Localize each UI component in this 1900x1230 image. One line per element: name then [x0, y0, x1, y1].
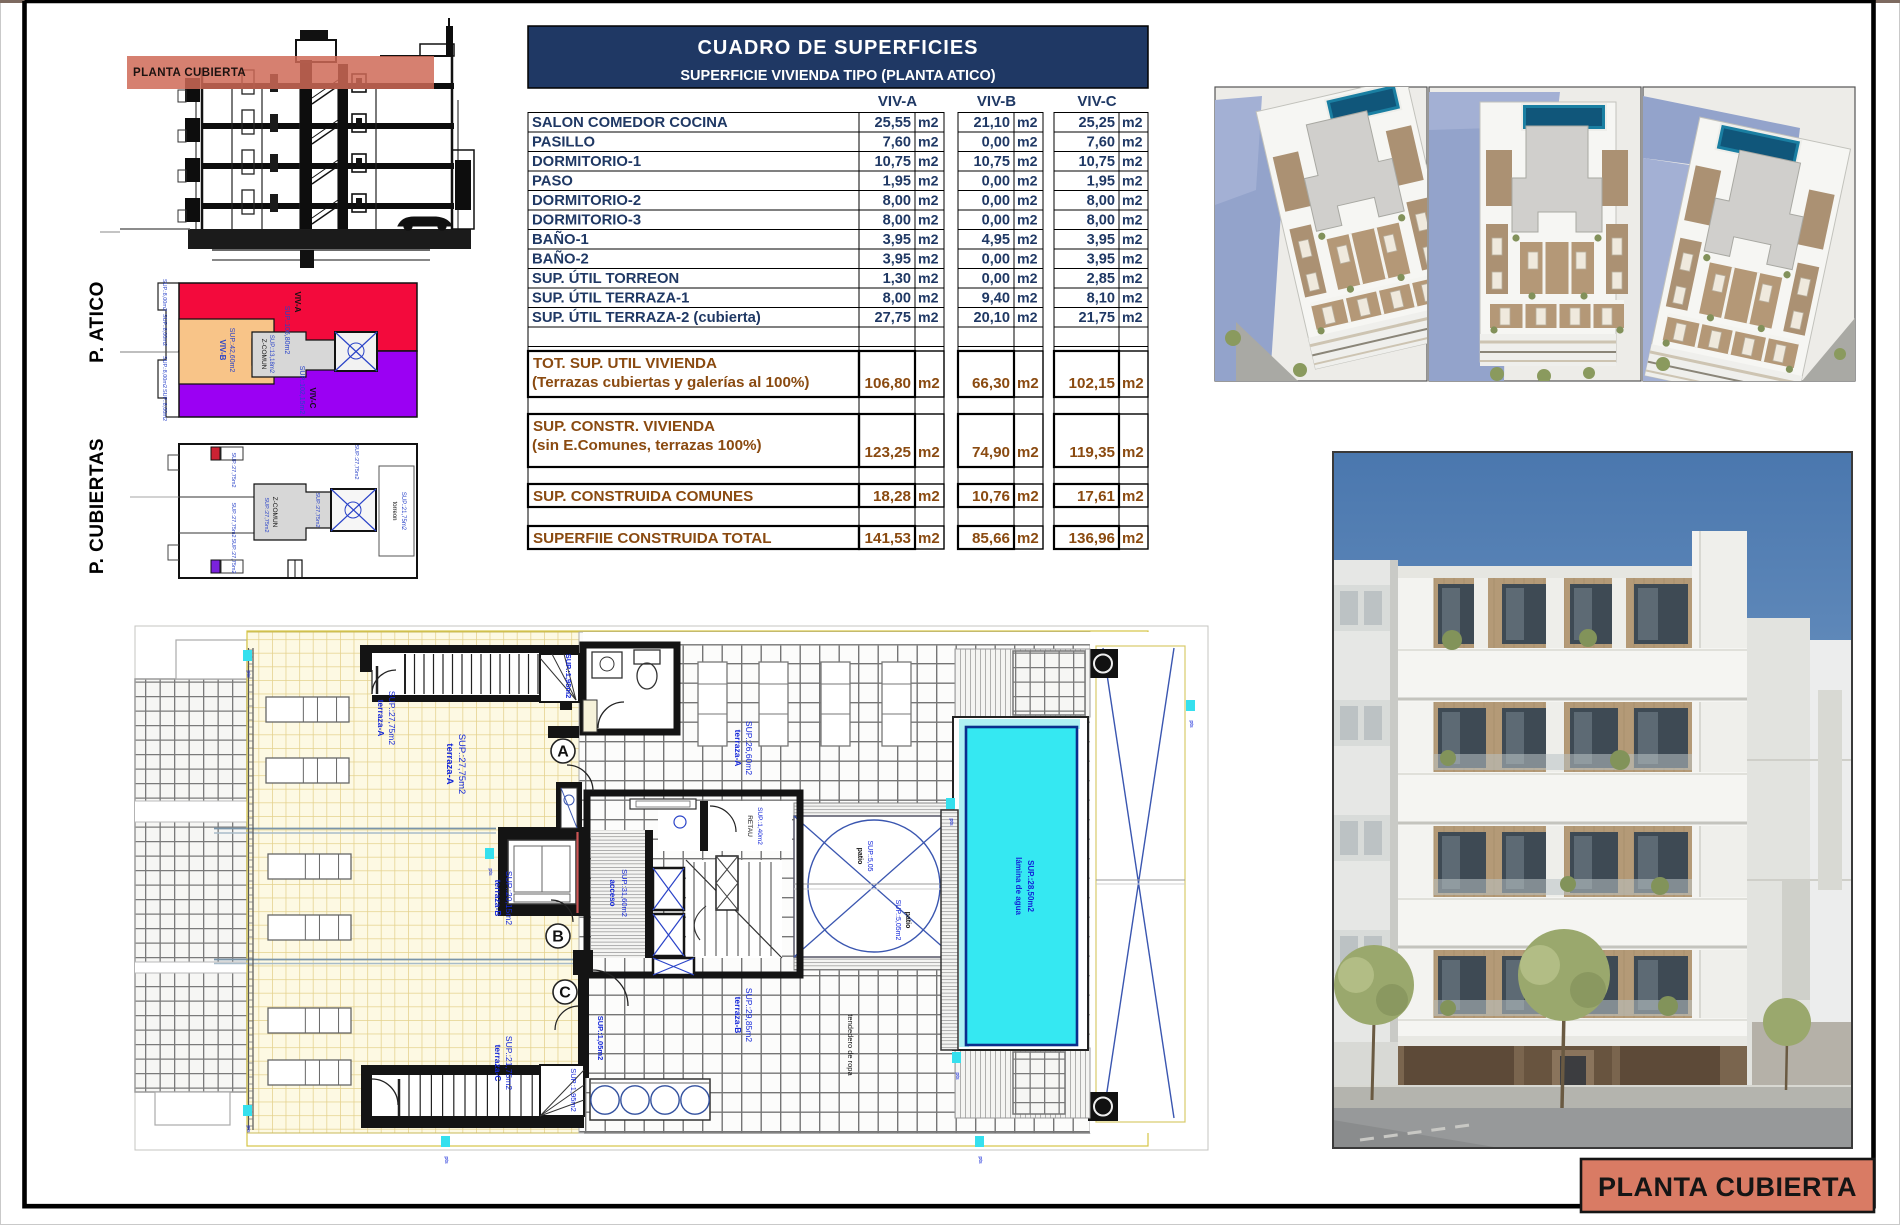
- svg-text:0,00: 0,00: [982, 212, 1010, 228]
- svg-text:SUP.:106,80m2: SUP.:106,80m2: [283, 306, 290, 355]
- svg-text:m2: m2: [1017, 310, 1038, 326]
- svg-text:m2: m2: [1017, 271, 1038, 287]
- svg-text:m2: m2: [1017, 530, 1039, 547]
- svg-text:17,61: 17,61: [1077, 488, 1116, 505]
- svg-text:m2: m2: [1017, 134, 1038, 150]
- svg-text:VIV-A: VIV-A: [293, 292, 302, 313]
- svg-text:patio: patio: [856, 848, 863, 865]
- svg-text:8,00: 8,00: [1087, 193, 1115, 209]
- svg-text:lámina de agua: lámina de agua: [1014, 857, 1023, 915]
- svg-text:25,55: 25,55: [874, 115, 911, 131]
- svg-text:SUP.:102,15m2: SUP.:102,15m2: [298, 366, 305, 415]
- svg-text:DORMITORIO-2: DORMITORIO-2: [532, 193, 641, 209]
- svg-text:SUP.:1,05m2: SUP.:1,05m2: [596, 1016, 605, 1060]
- svg-text:m2: m2: [918, 271, 939, 287]
- svg-text:SUP.:21,75m2: SUP.:21,75m2: [504, 1036, 514, 1090]
- svg-text:PLANTA CUBIERTA: PLANTA CUBIERTA: [133, 67, 246, 79]
- svg-text:SUP.:27,75m2: SUP.:27,75m2: [387, 691, 397, 745]
- svg-text:m2: m2: [1017, 173, 1038, 189]
- svg-text:m2: m2: [918, 251, 939, 267]
- svg-text:pts: pts: [245, 670, 251, 678]
- svg-text:Z-COMUN: Z-COMUN: [271, 497, 278, 528]
- svg-text:pts: pts: [245, 1125, 251, 1133]
- svg-text:7,60: 7,60: [1087, 134, 1115, 150]
- svg-text:m2: m2: [918, 212, 939, 228]
- svg-text:SUP.:27,75m2: SUP.:27,75m2: [230, 502, 236, 537]
- svg-text:terraza-C: terraza-C: [493, 1045, 503, 1082]
- svg-text:VIV-B: VIV-B: [977, 93, 1016, 110]
- svg-text:m2: m2: [1122, 232, 1143, 248]
- svg-text:123,25: 123,25: [865, 444, 912, 461]
- svg-text:(sin E.Comunes, terrazas 100%): (sin E.Comunes, terrazas 100%): [532, 437, 762, 454]
- svg-text:SUP.:42,60m2: SUP.:42,60m2: [228, 328, 235, 373]
- svg-text:Z-COMUN: Z-COMUN: [260, 339, 267, 370]
- svg-text:2,85: 2,85: [1087, 271, 1115, 287]
- svg-text:SUP. CONSTR. VIVIENDA: SUP. CONSTR. VIVIENDA: [533, 418, 715, 435]
- svg-text:m2: m2: [1017, 193, 1038, 209]
- svg-text:8,10: 8,10: [1087, 290, 1115, 306]
- svg-text:SUP.:1,95m2: SUP.:1,95m2: [569, 1068, 578, 1112]
- svg-text:7,60: 7,60: [883, 134, 911, 150]
- svg-text:m2: m2: [918, 193, 939, 209]
- svg-text:0,00: 0,00: [982, 251, 1010, 267]
- svg-text:pts: pts: [977, 1156, 983, 1164]
- svg-text:m2: m2: [918, 115, 939, 131]
- svg-text:141,53: 141,53: [865, 530, 911, 547]
- svg-text:m2: m2: [1122, 212, 1143, 228]
- svg-text:m2: m2: [1122, 173, 1143, 189]
- svg-text:pts: pts: [487, 868, 493, 876]
- svg-text:3,95: 3,95: [1087, 232, 1115, 248]
- svg-text:VIV-B: VIV-B: [218, 340, 227, 361]
- svg-text:A: A: [557, 744, 569, 761]
- svg-text:m2: m2: [1122, 310, 1143, 326]
- svg-text:SUP.:27,75m2: SUP.:27,75m2: [314, 492, 320, 527]
- svg-text:terraza-A: terraza-A: [444, 743, 455, 784]
- svg-text:P. CUBIERTAS: P. CUBIERTAS: [87, 438, 108, 574]
- svg-text:m2: m2: [1017, 232, 1038, 248]
- svg-text:m2: m2: [1122, 375, 1144, 392]
- svg-text:SUP.:31,60m2: SUP.:31,60m2: [620, 869, 629, 917]
- svg-text:B: B: [552, 929, 564, 946]
- svg-text:m2: m2: [1017, 488, 1039, 505]
- svg-text:tendedero de ropa: tendedero de ropa: [846, 1014, 855, 1076]
- svg-text:m2: m2: [918, 488, 940, 505]
- svg-text:20,10: 20,10: [973, 310, 1010, 326]
- svg-text:102,15: 102,15: [1069, 375, 1116, 392]
- svg-text:TOT. SUP. UTIL VIVIENDA: TOT. SUP. UTIL VIVIENDA: [533, 355, 717, 372]
- svg-text:(Terrazas cubiertas y galerías: (Terrazas cubiertas y galerías al 100%): [532, 374, 809, 391]
- svg-text:torreon: torreon: [391, 501, 397, 520]
- svg-text:4,95: 4,95: [982, 232, 1010, 248]
- svg-text:10,75: 10,75: [874, 154, 911, 170]
- svg-text:8,00: 8,00: [883, 212, 911, 228]
- svg-text:SUP.:8,00m2: SUP.:8,00m2: [161, 279, 167, 311]
- svg-text:PASO: PASO: [532, 173, 573, 189]
- svg-text:DORMITORIO-3: DORMITORIO-3: [532, 212, 641, 228]
- svg-text:1,95: 1,95: [883, 173, 911, 189]
- svg-text:0,00: 0,00: [982, 271, 1010, 287]
- svg-text:8,00: 8,00: [1087, 212, 1115, 228]
- svg-text:m2: m2: [918, 444, 940, 461]
- svg-text:terraza-B: terraza-B: [493, 880, 503, 917]
- svg-text:m2: m2: [1122, 530, 1144, 547]
- svg-text:SUP.:5,05m2: SUP.:5,05m2: [894, 900, 901, 941]
- svg-text:27,75: 27,75: [874, 310, 911, 326]
- svg-text:SUP.:27,75m2: SUP.:27,75m2: [230, 452, 236, 487]
- svg-text:SUP.:20,15m2: SUP.:20,15m2: [504, 871, 514, 925]
- svg-text:pts: pts: [948, 818, 954, 826]
- svg-text:BAÑO-2: BAÑO-2: [532, 249, 589, 267]
- svg-text:74,90: 74,90: [972, 444, 1010, 461]
- svg-text:1,95: 1,95: [1087, 173, 1115, 189]
- svg-text:SUP. ÚTIL TERRAZA-1: SUP. ÚTIL TERRAZA-1: [532, 288, 689, 306]
- svg-text:VIV-A: VIV-A: [878, 93, 917, 110]
- svg-text:SUP.:8,00m2: SUP.:8,00m2: [161, 314, 167, 346]
- svg-text:acceso: acceso: [608, 879, 617, 906]
- svg-text:25,25: 25,25: [1078, 115, 1115, 131]
- svg-text:m2: m2: [1017, 290, 1038, 306]
- svg-text:m2: m2: [1122, 154, 1143, 170]
- svg-text:m2: m2: [1017, 212, 1038, 228]
- svg-text:BAÑO-1: BAÑO-1: [532, 230, 589, 248]
- svg-text:0,00: 0,00: [982, 134, 1010, 150]
- svg-text:SALON COMEDOR COCINA: SALON COMEDOR COCINA: [532, 115, 728, 131]
- svg-text:RETAU: RETAU: [746, 815, 753, 837]
- svg-text:3,95: 3,95: [883, 251, 911, 267]
- svg-text:SUP.:5,05: SUP.:5,05: [866, 840, 873, 871]
- svg-text:terraza-A: terraza-A: [376, 700, 386, 737]
- svg-text:P. ATICO: P. ATICO: [87, 281, 108, 363]
- svg-text:SUP.:8,00m2: SUP.:8,00m2: [161, 356, 167, 388]
- svg-text:SUP.:13,18m2: SUP.:13,18m2: [268, 335, 274, 374]
- svg-text:m2: m2: [918, 375, 940, 392]
- svg-text:m2: m2: [1122, 290, 1143, 306]
- svg-text:m2: m2: [1122, 115, 1143, 131]
- svg-text:terraza-B: terraza-B: [733, 997, 743, 1034]
- svg-text:10,75: 10,75: [1078, 154, 1115, 170]
- svg-text:SUP.:1,95m2: SUP.:1,95m2: [564, 654, 573, 698]
- svg-text:0,00: 0,00: [982, 173, 1010, 189]
- svg-text:m2: m2: [918, 290, 939, 306]
- svg-text:m2: m2: [918, 154, 939, 170]
- svg-text:SUP.:27,75m2: SUP.:27,75m2: [263, 497, 269, 532]
- svg-text:m2: m2: [1122, 271, 1143, 287]
- svg-text:terraza-A: terraza-A: [733, 730, 743, 767]
- svg-text:m2: m2: [1017, 375, 1039, 392]
- svg-text:DORMITORIO-1: DORMITORIO-1: [532, 154, 641, 170]
- svg-text:3,95: 3,95: [883, 232, 911, 248]
- svg-text:SUP.:27,75m2: SUP.:27,75m2: [353, 444, 359, 479]
- svg-text:SUP.:29,85m2: SUP.:29,85m2: [744, 988, 754, 1042]
- svg-text:SUP.:27,75m2: SUP.:27,75m2: [456, 734, 467, 795]
- svg-text:66,30: 66,30: [972, 375, 1010, 392]
- svg-text:8,00: 8,00: [883, 290, 911, 306]
- svg-text:CUADRO DE SUPERFICIES: CUADRO DE SUPERFICIES: [697, 37, 978, 59]
- svg-text:SUP.:28,50m2: SUP.:28,50m2: [1026, 860, 1035, 912]
- svg-text:SUP.:1,40m2: SUP.:1,40m2: [756, 807, 763, 845]
- svg-text:m2: m2: [918, 232, 939, 248]
- svg-text:m2: m2: [1017, 251, 1038, 267]
- svg-text:0,00: 0,00: [982, 193, 1010, 209]
- svg-text:m2: m2: [1017, 154, 1038, 170]
- svg-text:10,76: 10,76: [972, 488, 1010, 505]
- svg-text:m2: m2: [1122, 488, 1144, 505]
- svg-text:SUP.:26,60m2: SUP.:26,60m2: [744, 721, 754, 775]
- svg-text:m2: m2: [1122, 193, 1143, 209]
- svg-text:106,80: 106,80: [865, 375, 911, 392]
- svg-text:18,28: 18,28: [873, 488, 911, 505]
- svg-text:PASILLO: PASILLO: [532, 134, 595, 150]
- svg-text:m2: m2: [918, 173, 939, 189]
- svg-text:PLANTA CUBIERTA: PLANTA CUBIERTA: [1598, 1172, 1857, 1202]
- svg-text:10,75: 10,75: [973, 154, 1010, 170]
- svg-text:85,66: 85,66: [972, 530, 1010, 547]
- svg-text:m2: m2: [918, 530, 940, 547]
- svg-text:SUP. ÚTIL TERRAZA-2 (cubierta): SUP. ÚTIL TERRAZA-2 (cubierta): [532, 308, 761, 326]
- svg-text:SUP. CONSTRUIDA COMUNES: SUP. CONSTRUIDA COMUNES: [533, 488, 753, 505]
- svg-text:136,96: 136,96: [1069, 530, 1115, 547]
- svg-text:VIV-C: VIV-C: [308, 388, 317, 409]
- svg-text:m2: m2: [1017, 115, 1038, 131]
- svg-text:m2: m2: [918, 310, 939, 326]
- svg-text:1,30: 1,30: [883, 271, 911, 287]
- svg-text:21,75: 21,75: [1078, 310, 1115, 326]
- svg-text:VIV-C: VIV-C: [1077, 93, 1116, 110]
- svg-text:C: C: [559, 985, 571, 1002]
- svg-text:m2: m2: [1017, 444, 1039, 461]
- svg-text:119,35: 119,35: [1069, 444, 1115, 461]
- svg-text:pts: pts: [443, 1156, 449, 1164]
- svg-text:8,00: 8,00: [883, 193, 911, 209]
- svg-text:SUPERFIIE CONSTRUIDA TOTAL: SUPERFIIE CONSTRUIDA TOTAL: [533, 530, 772, 547]
- svg-text:m2: m2: [1122, 444, 1144, 461]
- svg-text:m2: m2: [918, 134, 939, 150]
- svg-text:SUP. ÚTIL TORREON: SUP. ÚTIL TORREON: [532, 269, 679, 287]
- svg-text:SUP.:27,75m2: SUP.:27,75m2: [230, 538, 236, 573]
- svg-text:m2: m2: [1122, 134, 1143, 150]
- svg-text:m2: m2: [1122, 251, 1143, 267]
- svg-text:21,10: 21,10: [973, 115, 1010, 131]
- svg-text:3,95: 3,95: [1087, 251, 1115, 267]
- svg-text:pts: pts: [1188, 720, 1194, 728]
- svg-text:SUP.:21,75m2: SUP.:21,75m2: [400, 492, 406, 531]
- svg-text:SUPERFICIE VIVIENDA TIPO (PLA: SUPERFICIE VIVIENDA TIPO (PLANTA ATICO): [680, 68, 995, 84]
- svg-text:9,40: 9,40: [982, 290, 1010, 306]
- svg-text:pts: pts: [954, 1072, 960, 1080]
- svg-text:patio: patio: [904, 912, 911, 929]
- svg-text:SUP.:8,00m2: SUP.:8,00m2: [161, 389, 167, 421]
